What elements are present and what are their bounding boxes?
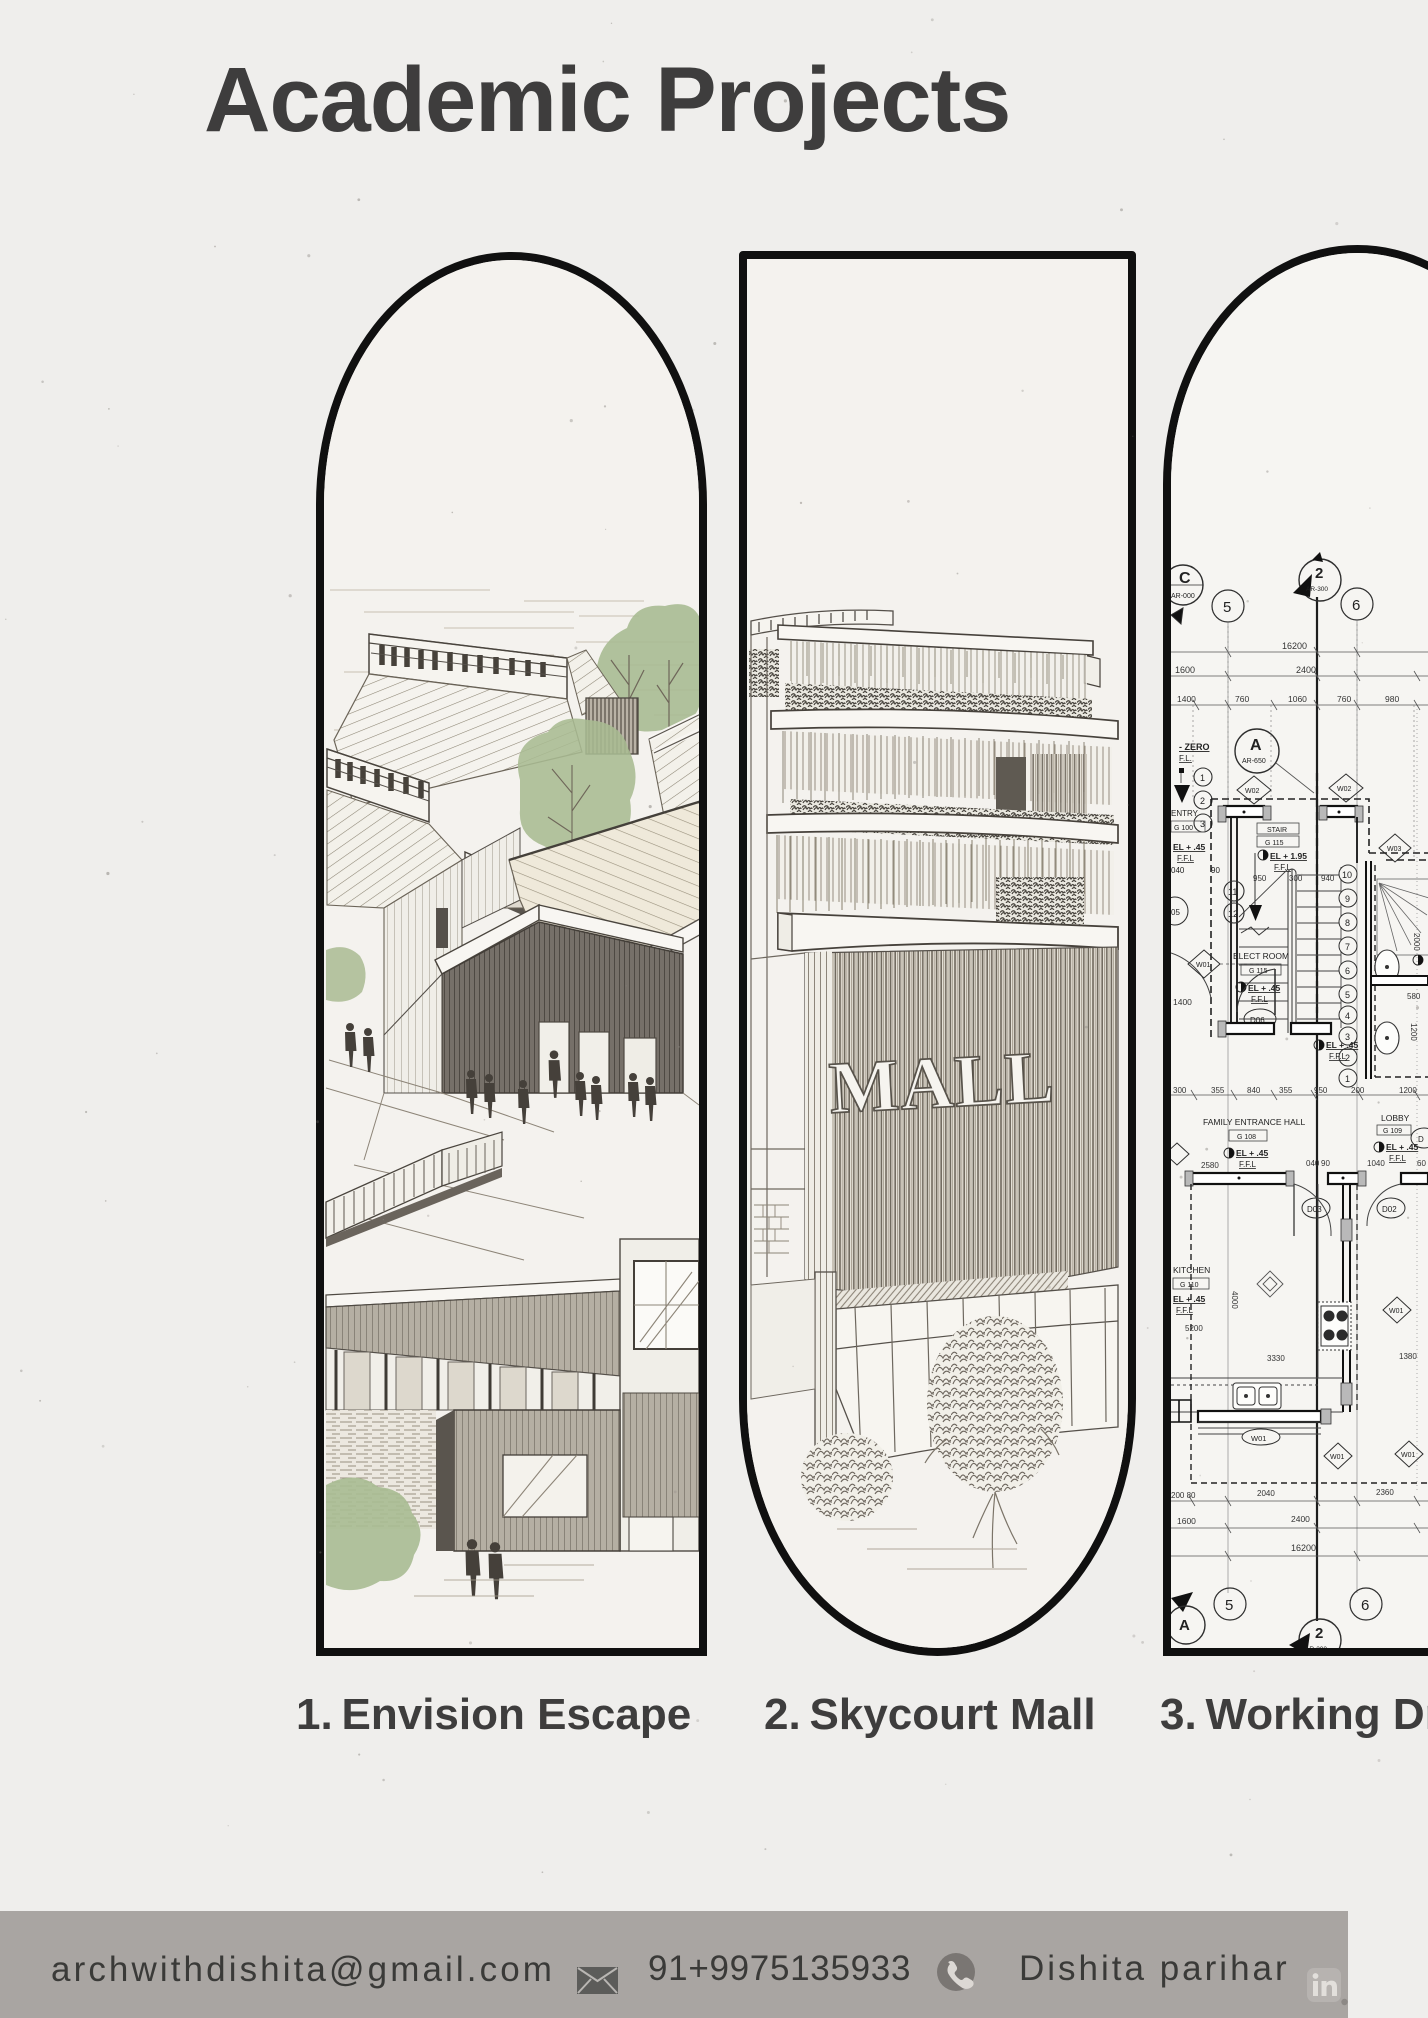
svg-text:2040: 2040: [1257, 1489, 1275, 1498]
svg-text:355: 355: [1279, 1086, 1293, 1095]
svg-text:F.L.: F.L.: [1179, 754, 1192, 763]
svg-text:10: 10: [1342, 870, 1352, 880]
svg-text:F.F.L: F.F.L: [1329, 1052, 1346, 1061]
svg-text:16200: 16200: [1282, 641, 1307, 651]
svg-text:G 108: G 108: [1237, 1134, 1256, 1141]
svg-text:2: 2: [1315, 565, 1323, 582]
svg-text:G 109: G 109: [1383, 1128, 1402, 1135]
svg-text:1400: 1400: [1177, 694, 1196, 704]
svg-text:1: 1: [1200, 773, 1205, 783]
svg-text:980: 980: [1385, 694, 1399, 704]
svg-text:- ZERO: - ZERO: [1179, 742, 1210, 752]
svg-text:16200: 16200: [1291, 1543, 1316, 1553]
svg-text:EL + .45: EL + .45: [1173, 1294, 1205, 1304]
svg-text:4: 4: [1345, 1011, 1350, 1021]
svg-text:AR-650: AR-650: [1242, 758, 1266, 765]
svg-text:6: 6: [1361, 1597, 1369, 1614]
svg-text:200: 200: [1351, 1086, 1365, 1095]
svg-text:2: 2: [1200, 796, 1205, 806]
svg-text:D: D: [1418, 1135, 1424, 1144]
svg-text:4000: 4000: [1230, 1291, 1239, 1309]
svg-text:LOBBY: LOBBY: [1381, 1113, 1410, 1123]
svg-text:90: 90: [1211, 866, 1220, 875]
svg-text:A: A: [1250, 737, 1262, 754]
svg-text:AR-000: AR-000: [1171, 593, 1195, 600]
svg-text:1060: 1060: [1288, 694, 1307, 704]
svg-text:1400: 1400: [1173, 997, 1192, 1007]
svg-text:1040: 1040: [1367, 1159, 1385, 1168]
svg-text:W02: W02: [1245, 788, 1260, 795]
svg-text:11: 11: [1228, 887, 1237, 897]
svg-text:F.F.L: F.F.L: [1389, 1154, 1406, 1163]
svg-text:1200: 1200: [1409, 1023, 1418, 1041]
svg-text:G 100: G 100: [1174, 825, 1193, 832]
svg-text:2580: 2580: [1201, 1161, 1219, 1170]
svg-text:840: 840: [1247, 1086, 1261, 1095]
svg-text:5200: 5200: [1185, 1324, 1203, 1333]
svg-text:9: 9: [1345, 894, 1350, 904]
svg-text:ELECT ROOM: ELECT ROOM: [1233, 951, 1289, 961]
svg-text:STAIR: STAIR: [1267, 827, 1287, 834]
svg-text:3: 3: [1200, 819, 1205, 829]
svg-text:F.F.L: F.F.L: [1239, 1160, 1256, 1169]
svg-text:G 115: G 115: [1265, 840, 1284, 847]
svg-text:2360: 2360: [1376, 1488, 1394, 1497]
svg-text:12: 12: [1228, 909, 1238, 919]
svg-text:760: 760: [1235, 694, 1249, 704]
svg-text:EL + 1.95: EL + 1.95: [1270, 851, 1307, 861]
svg-text:AR-300: AR-300: [1305, 1646, 1327, 1648]
svg-text:MALL: MALL: [827, 1036, 1057, 1130]
svg-text:1600: 1600: [1177, 1516, 1196, 1526]
svg-text:1600: 1600: [1175, 665, 1195, 675]
svg-text:760: 760: [1337, 694, 1351, 704]
svg-text:EL + .45: EL + .45: [1326, 1040, 1358, 1050]
svg-text:EL + .45: EL + .45: [1173, 842, 1205, 852]
svg-text:C: C: [1179, 570, 1191, 587]
svg-text:950: 950: [1314, 1086, 1328, 1095]
svg-text:D03: D03: [1307, 1205, 1322, 1214]
svg-text:6: 6: [1345, 966, 1350, 976]
svg-text:8: 8: [1345, 918, 1350, 928]
svg-text:2400: 2400: [1291, 1514, 1310, 1524]
svg-text:W01: W01: [1330, 1454, 1345, 1461]
svg-text:FAMILY ENTRANCE HALL: FAMILY ENTRANCE HALL: [1203, 1117, 1305, 1127]
svg-text:2: 2: [1315, 1625, 1323, 1642]
svg-text:A: A: [1179, 1617, 1190, 1634]
svg-text:W01: W01: [1251, 1434, 1266, 1443]
svg-text:F.F.L: F.F.L: [1177, 854, 1194, 863]
svg-text:5: 5: [1225, 1597, 1233, 1614]
svg-text:1: 1: [1345, 1074, 1350, 1084]
svg-text:580: 580: [1407, 992, 1421, 1001]
svg-text:W01: W01: [1196, 962, 1211, 969]
svg-text:W01: W01: [1389, 1308, 1404, 1315]
svg-text:200 80: 200 80: [1171, 1491, 1196, 1500]
svg-text:90: 90: [1321, 1159, 1330, 1168]
svg-text:AR-300: AR-300: [1306, 586, 1328, 593]
svg-text:F.F.L: F.F.L: [1251, 995, 1268, 1004]
svg-text:5: 5: [1223, 599, 1231, 616]
svg-text:2400: 2400: [1296, 665, 1316, 675]
svg-text:2000: 2000: [1412, 933, 1421, 951]
svg-text:300: 300: [1173, 1086, 1187, 1095]
svg-text:3330: 3330: [1267, 1354, 1285, 1363]
svg-text:D02: D02: [1382, 1205, 1397, 1214]
svg-text:ENTRY: ENTRY: [1171, 809, 1199, 818]
svg-text:355: 355: [1211, 1086, 1225, 1095]
svg-text:040: 040: [1171, 866, 1185, 875]
svg-text:1380: 1380: [1399, 1352, 1417, 1361]
svg-text:5: 5: [1345, 990, 1350, 1000]
svg-text:1200: 1200: [1399, 1086, 1417, 1095]
svg-text:05: 05: [1171, 908, 1180, 917]
svg-text:W03: W03: [1387, 846, 1402, 853]
svg-text:W02: W02: [1337, 786, 1352, 793]
svg-text:7: 7: [1345, 942, 1350, 952]
svg-text:6: 6: [1352, 597, 1360, 614]
svg-text:040: 040: [1306, 1159, 1320, 1168]
svg-text:W01: W01: [1401, 1452, 1416, 1459]
svg-text:EL + .45: EL + .45: [1236, 1148, 1268, 1158]
svg-text:G 110: G 110: [1180, 1282, 1199, 1289]
svg-text:60: 60: [1417, 1159, 1426, 1168]
